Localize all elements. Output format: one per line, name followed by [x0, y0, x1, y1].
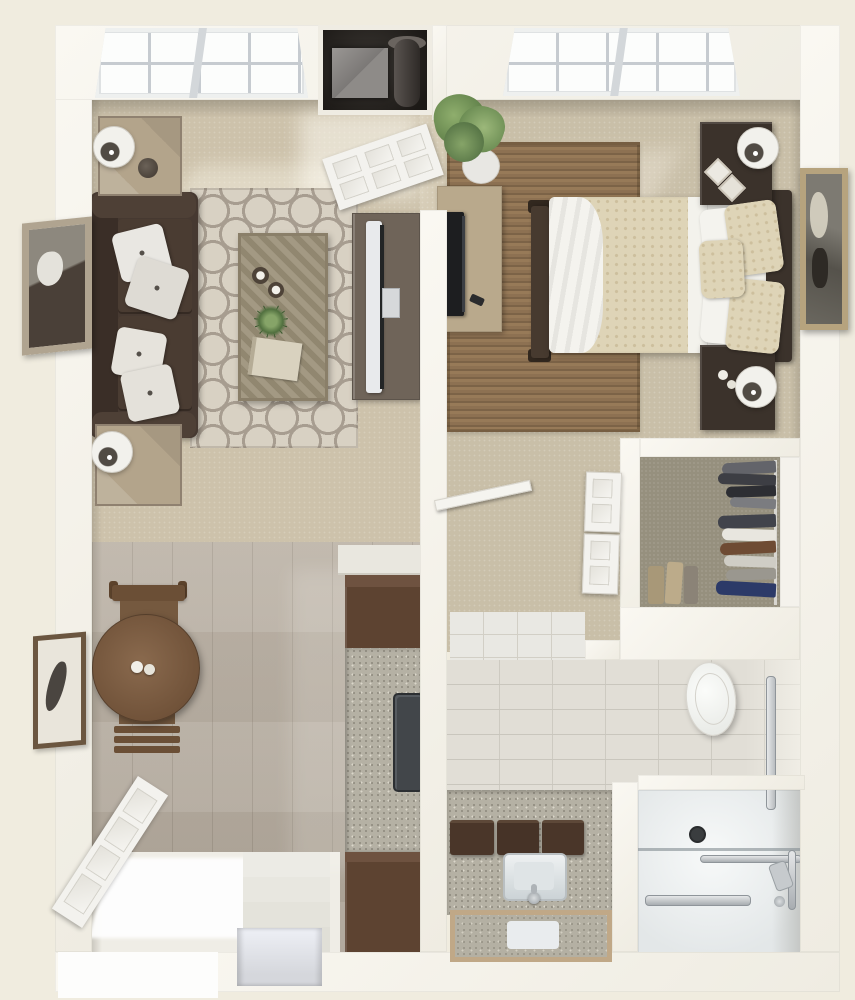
wall-left [55, 25, 92, 952]
plant-foliage [444, 122, 484, 162]
hanging-garment [722, 528, 776, 542]
mirror-bed-reflection [810, 192, 828, 238]
shower-top-wall [638, 775, 805, 790]
chair-slat [114, 726, 180, 733]
utility-niche [318, 25, 432, 115]
nightstand-lamp [735, 366, 777, 408]
salt-shaker [131, 661, 143, 673]
candle [252, 267, 269, 284]
wall-middle [420, 210, 447, 952]
step-tread [243, 902, 330, 930]
pepper-shaker [144, 664, 155, 675]
shower-glass-edge [628, 848, 805, 851]
wall-right [800, 25, 840, 952]
glass-towel-bar [700, 855, 802, 863]
entry-landing-extension [58, 952, 218, 998]
dining-table [92, 614, 200, 722]
shower-valve [774, 896, 785, 907]
botanical-print-frame [33, 632, 86, 750]
nightstand-lamp [737, 127, 779, 169]
table-lamp [93, 126, 135, 168]
cup-decor [727, 380, 736, 389]
bed-footboard [531, 206, 549, 358]
kitchen-lower-cabinet [345, 852, 420, 952]
mirror-sink-reflection [507, 921, 559, 949]
kitchen-counter-return [338, 545, 420, 575]
hanging-garment [726, 485, 776, 498]
decor-bowl [138, 158, 158, 178]
step-tread [243, 852, 330, 880]
hanging-garment [724, 555, 776, 568]
leaning-gold-mirror [800, 168, 848, 330]
throw-pillow [119, 363, 180, 423]
vanity-mirror-reflection [450, 910, 612, 962]
rustic-wall-mirror [22, 216, 92, 355]
vanity-storage-box [450, 820, 494, 855]
bedroom-window [503, 28, 740, 96]
tv-mount [382, 288, 400, 318]
folded-garment [648, 566, 664, 604]
wall-closet-bottom [620, 607, 800, 660]
storage-box [332, 48, 388, 98]
bedroom-tv-edge [462, 216, 465, 312]
table-plant [254, 304, 288, 338]
cup-decor [718, 370, 728, 380]
chair-slat [114, 736, 180, 743]
potted-plant [432, 92, 512, 187]
book [248, 337, 303, 382]
faucet-spout [531, 884, 537, 894]
table-lamp [91, 431, 133, 473]
closet-shelf-band [780, 457, 800, 607]
wall-vanity-shower-divider [612, 782, 638, 952]
kitchen-upper-cabinet [345, 575, 420, 648]
closet-bifold-doors [582, 471, 620, 592]
wall-bath-door-jamb [585, 640, 620, 660]
hanging-garment [718, 514, 776, 529]
botanical-art [42, 660, 70, 712]
hanging-garment [726, 568, 776, 581]
toilet-lid-line [692, 671, 731, 726]
hanging-garment [718, 473, 776, 486]
bifold-panel [584, 471, 622, 532]
sofa-back [90, 198, 118, 432]
floor-plan [0, 0, 855, 1000]
chair-backrest [112, 585, 185, 601]
mirror-pillow-reflection [37, 250, 63, 287]
candle [268, 282, 284, 298]
step-tread [243, 877, 330, 905]
bathroom-threshold-tile [450, 612, 585, 660]
vanity-storage-box [497, 820, 539, 855]
grab-bar-shower [645, 895, 751, 906]
entry-step-alcove [237, 928, 322, 986]
wall-closet-top [640, 438, 800, 457]
chair-slat [114, 746, 180, 753]
bifold-panel [582, 533, 620, 594]
folded-garment [665, 561, 684, 604]
vanity-storage-box [542, 820, 584, 855]
tall-vase [394, 39, 420, 107]
bed-sheet-drape [549, 197, 603, 353]
living-room-window [95, 28, 308, 98]
bed-pillow-small [699, 239, 746, 299]
folded-garment [684, 566, 698, 604]
mirror-dark-reflection [812, 248, 828, 288]
shower-drain [689, 826, 706, 843]
